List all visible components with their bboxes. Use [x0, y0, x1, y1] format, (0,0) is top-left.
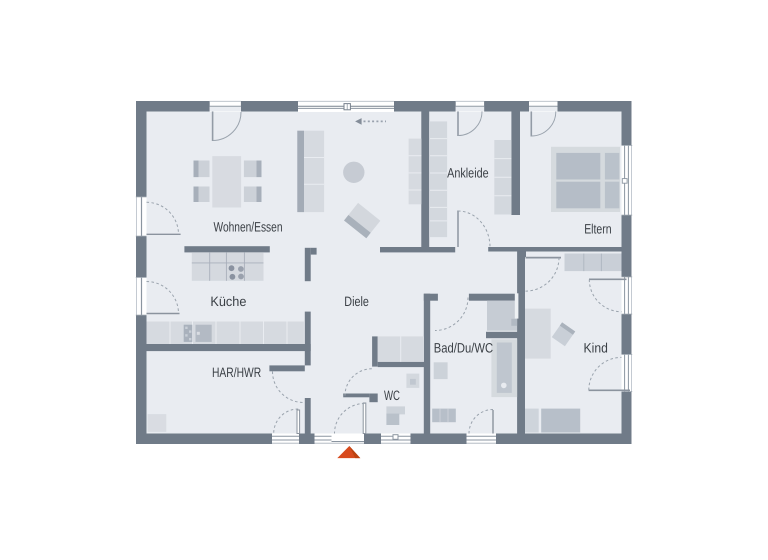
svg-text:Küche: Küche: [210, 294, 246, 309]
svg-text:WC: WC: [384, 388, 400, 403]
svg-text:Bad/Du/WC: Bad/Du/WC: [434, 340, 493, 355]
svg-text:Diele: Diele: [344, 294, 369, 309]
svg-text:Wohnen/Essen: Wohnen/Essen: [214, 220, 283, 235]
svg-text:HAR/HWR: HAR/HWR: [212, 365, 261, 380]
svg-text:Ankleide: Ankleide: [447, 165, 489, 180]
svg-text:Kind: Kind: [584, 340, 608, 355]
svg-text:Eltern: Eltern: [584, 221, 611, 236]
